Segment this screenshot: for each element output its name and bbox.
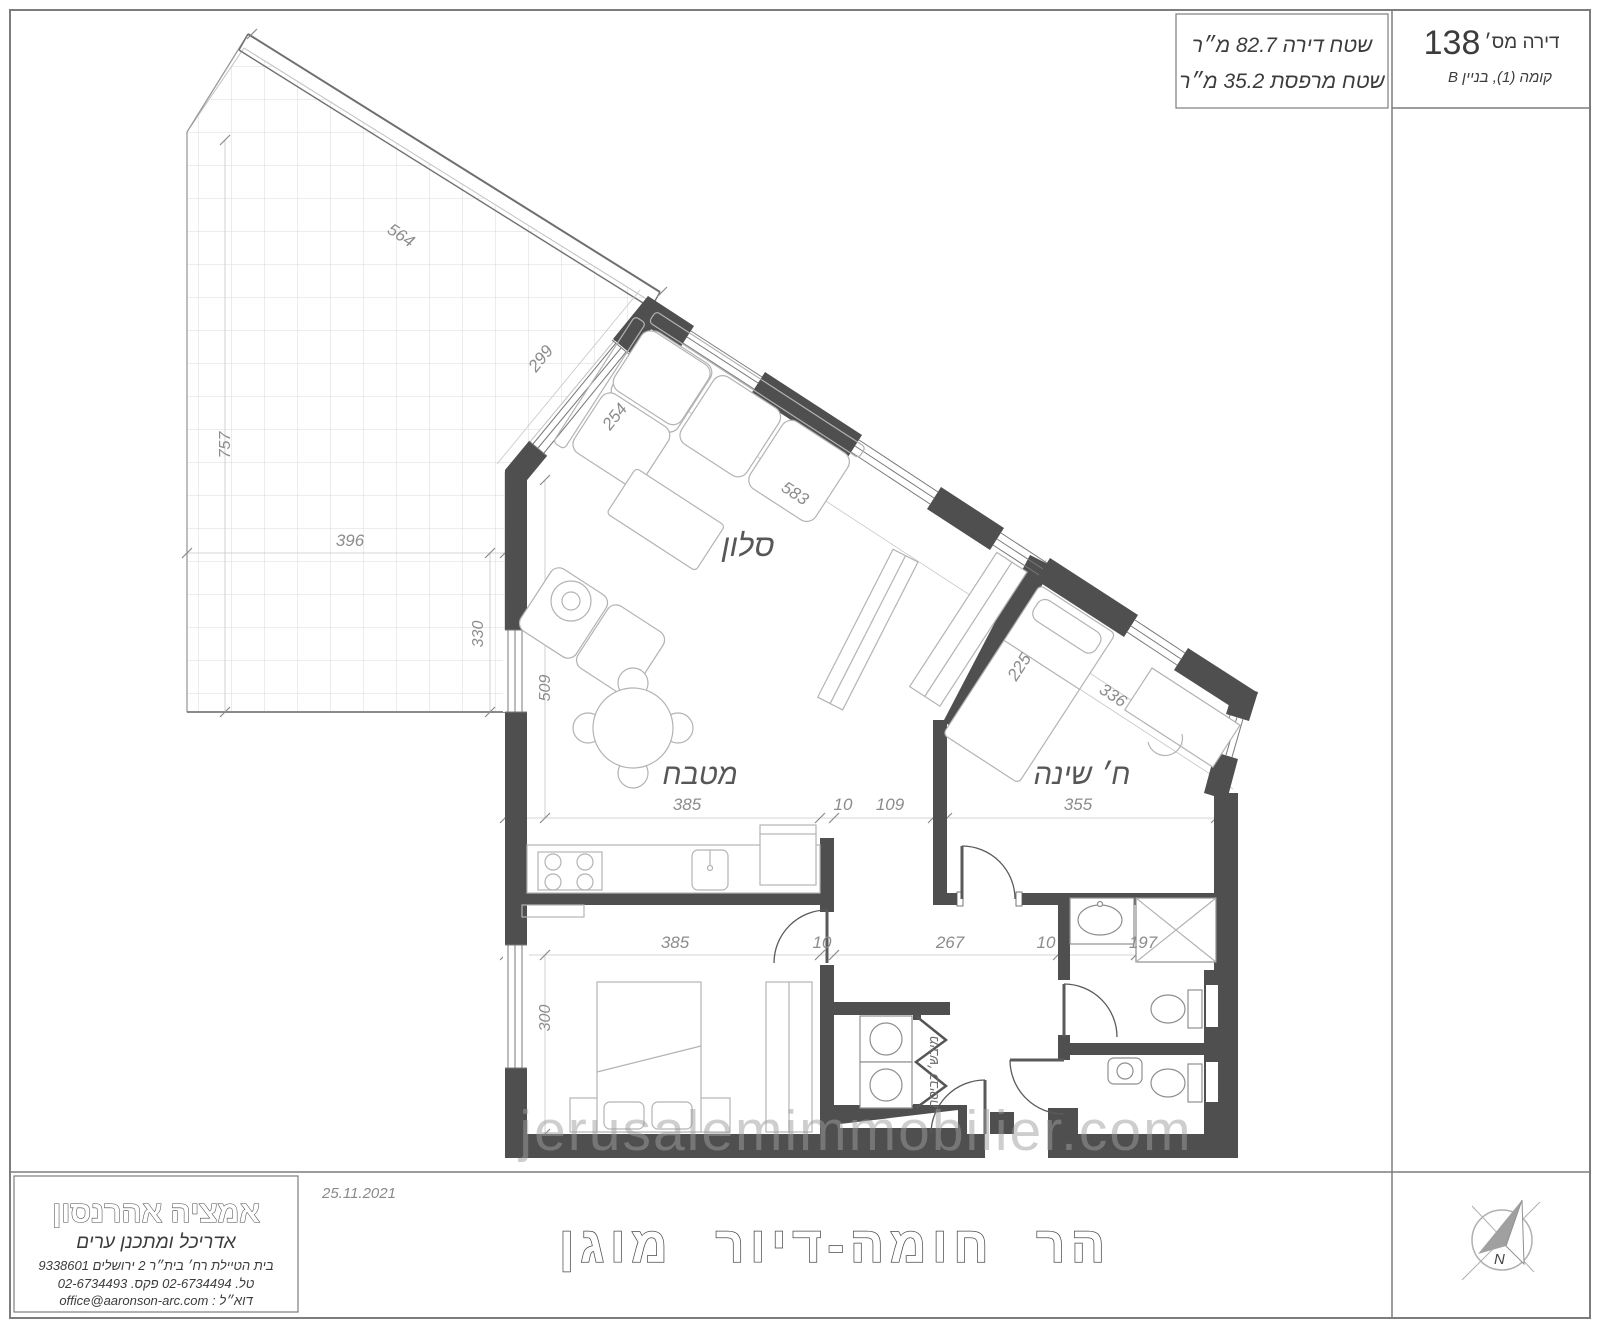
apartment-label: דירה מס׳ xyxy=(1484,32,1560,53)
dim-300: 300 xyxy=(537,1005,554,1032)
drawing-date: 25.11.2021 xyxy=(321,1185,396,1202)
dim-396: 396 xyxy=(336,531,365,550)
dim-336: 336 xyxy=(1096,680,1131,712)
architect-phone-fax: טל. 02-6734494 פקס. 02-6734493 xyxy=(58,1276,255,1291)
tv-unit xyxy=(818,549,918,710)
toilet-tank xyxy=(1188,990,1202,1028)
dim-267: 267 xyxy=(935,933,965,952)
title-block: 138 דירה מס׳ קומה (1), בניין B שטח דירה … xyxy=(1179,24,1560,93)
door-bathroom1 xyxy=(1064,984,1117,1037)
bath-sink xyxy=(1078,905,1122,935)
drawing-sheet: 564 299 757 396 330 254 583 509 385 10 1… xyxy=(0,0,1600,1328)
area-balcony: שטח מרפסת 35.2 מ״ר xyxy=(1179,70,1385,93)
dim-757: 757 xyxy=(217,431,234,459)
room-label-bedroom: ח׳ שינה xyxy=(1034,759,1131,791)
watermark: jerusalemimmobilier.com xyxy=(517,1099,1192,1163)
kitchen-furniture xyxy=(527,825,820,893)
dining-table xyxy=(593,688,673,768)
dim-355: 355 xyxy=(1064,795,1093,814)
dim-10-top: 10 xyxy=(834,795,853,814)
toilet2 xyxy=(1151,1069,1185,1097)
room-label-living: סלון xyxy=(721,528,775,563)
dresser xyxy=(522,905,584,917)
area-apartment: שטח דירה 82.7 מ״ר xyxy=(1192,34,1373,57)
floor-building-line: קומה (1), בניין B xyxy=(1448,69,1552,86)
dim-197: 197 xyxy=(1129,933,1158,952)
fridge xyxy=(760,833,816,885)
toilet-tank xyxy=(1188,1064,1202,1102)
architect-address: בית הטיילת רח׳ בית״ר 2 ירושלים 9338601 xyxy=(38,1258,273,1273)
dim-385-bottom: 385 xyxy=(661,933,690,952)
compass-icon: N xyxy=(1462,1200,1540,1280)
architect-name: אמציה אהרנסון xyxy=(52,1196,260,1229)
dim-509: 509 xyxy=(537,675,554,702)
bathroom-fixtures xyxy=(1070,898,1216,1102)
architect-block: אמציה אהרנסון אדריכל ומתכנן ערים בית הטי… xyxy=(38,1196,273,1308)
room-label-kitchen: מטבח xyxy=(662,759,737,791)
project-title: הר חומה-דיור מוגן xyxy=(559,1217,1111,1273)
room-label-laundry: מיבש׳ כביסה xyxy=(926,1036,941,1108)
footer: 25.11.2021 הר חומה-דיור מוגן xyxy=(321,1185,1111,1273)
dim-109: 109 xyxy=(876,795,905,814)
floor-plan-svg: 564 299 757 396 330 254 583 509 385 10 1… xyxy=(0,0,1600,1328)
compass-north-label: N xyxy=(1494,1251,1505,1268)
dim-10-bottom-right: 10 xyxy=(1037,933,1056,952)
dim-330: 330 xyxy=(470,621,487,648)
dim-385-top: 385 xyxy=(673,795,702,814)
toilet1 xyxy=(1151,995,1185,1023)
architect-profession: אדריכל ומתכנן ערים xyxy=(76,1232,237,1253)
apartment-number: 138 xyxy=(1424,24,1481,62)
dim-10-bottom-left: 10 xyxy=(813,933,832,952)
architect-email: דוא״ל : office@aaronson-arc.com xyxy=(59,1293,253,1308)
